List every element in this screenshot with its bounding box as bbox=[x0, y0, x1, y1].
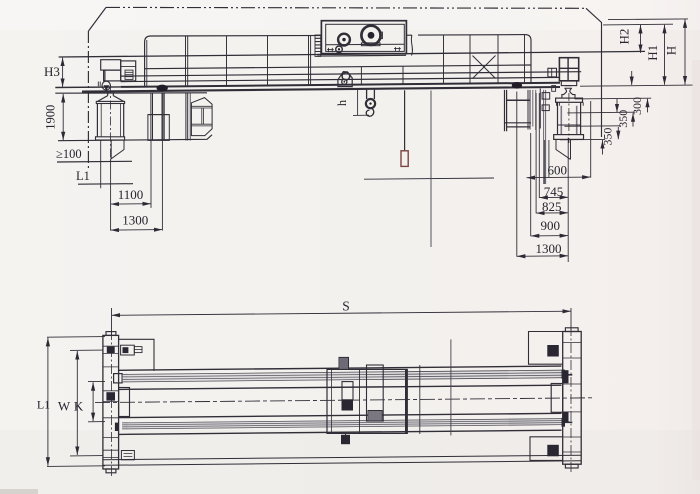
svg-text:L1: L1 bbox=[76, 169, 90, 183]
svg-text:h: h bbox=[335, 99, 349, 106]
svg-text:1100: 1100 bbox=[118, 187, 144, 202]
svg-text:H2: H2 bbox=[617, 29, 632, 45]
svg-text:900: 900 bbox=[541, 218, 561, 233]
svg-text:350: 350 bbox=[601, 128, 615, 146]
svg-text:S: S bbox=[342, 299, 350, 314]
svg-text:W: W bbox=[58, 399, 71, 414]
svg-text:600: 600 bbox=[548, 163, 568, 178]
svg-text:K: K bbox=[74, 399, 84, 414]
svg-text:H3: H3 bbox=[44, 64, 60, 79]
svg-text:H: H bbox=[664, 46, 679, 55]
svg-text:1300: 1300 bbox=[536, 241, 562, 256]
svg-text:L1: L1 bbox=[37, 398, 50, 412]
svg-text:1300: 1300 bbox=[122, 212, 148, 227]
svg-text:745: 745 bbox=[544, 184, 564, 199]
svg-text:350: 350 bbox=[616, 110, 630, 128]
svg-text:825: 825 bbox=[542, 199, 562, 214]
svg-text:≥100: ≥100 bbox=[56, 147, 82, 161]
svg-text:300: 300 bbox=[630, 97, 644, 115]
svg-text:H1: H1 bbox=[645, 45, 660, 61]
svg-text:1900: 1900 bbox=[44, 105, 58, 130]
